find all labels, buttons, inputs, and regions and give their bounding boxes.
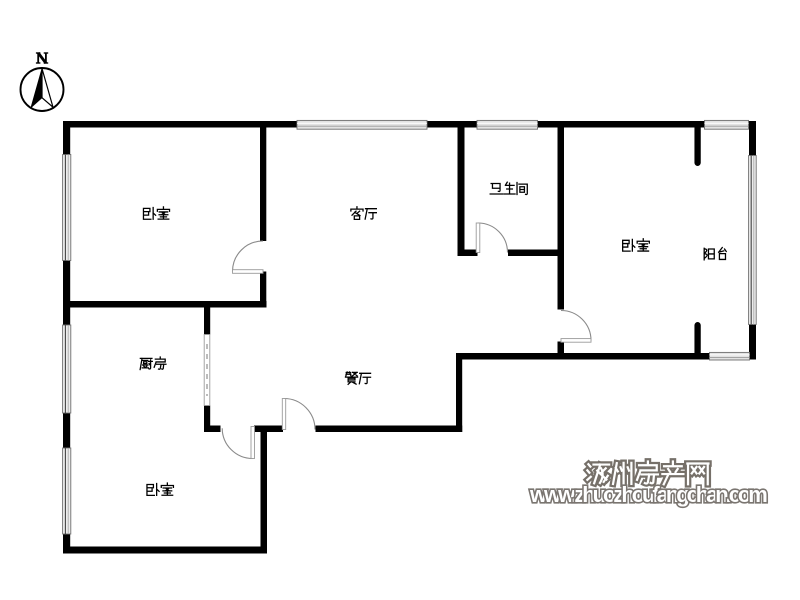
svg-text:www.zhuozhoufangchan.com: www.zhuozhoufangchan.com	[529, 482, 768, 507]
